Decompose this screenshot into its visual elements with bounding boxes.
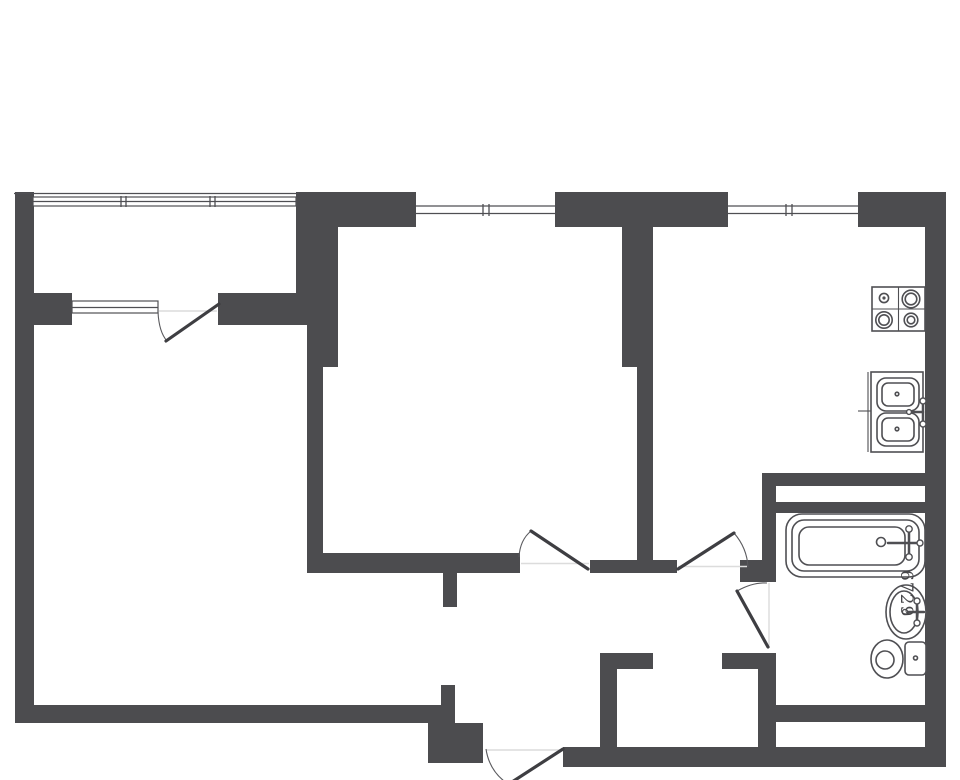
wall-bathroom-north [776, 502, 925, 513]
entrance-door-swing-arc [486, 749, 504, 780]
bedroom-door-swing-arc [519, 531, 531, 557]
entrance-door-leaf [512, 749, 563, 780]
toilet-tank [905, 642, 926, 675]
washbasin-faucet-knob [914, 620, 920, 626]
entrance-door [486, 749, 563, 780]
sink-faucet-knob [920, 398, 926, 404]
bathtub-outer [786, 514, 925, 577]
wall-bathroom-south [776, 705, 925, 722]
bedroom-window [416, 204, 555, 216]
balcony-inner-window [72, 301, 158, 313]
wall-bedroom-west-pilaster [307, 227, 338, 367]
kitchen-sink-icon [858, 372, 926, 452]
wall-living-south [15, 705, 455, 723]
walls [15, 192, 946, 767]
sink-faucet-knob [920, 421, 926, 427]
kitchen-window [728, 204, 858, 216]
stove-icon [872, 287, 925, 331]
sink-faucet-base [907, 410, 912, 415]
balcony-glazing-band [14, 194, 299, 208]
floor-plan: 6729 [0, 0, 960, 780]
wall-top-segment-a [320, 192, 416, 227]
stove-burner-center [882, 296, 885, 299]
wall-living-hall-stub-upper [443, 556, 457, 607]
toilet-icon [871, 640, 926, 678]
balcony-door-swing-arc [158, 312, 167, 341]
wall-bottom-outer [563, 747, 945, 767]
bathtub-icon [786, 514, 925, 577]
wall-balcony-sill-left [34, 293, 72, 325]
wall-balcony-sill-right [218, 293, 306, 325]
wall-left-outer [15, 192, 34, 723]
room-living-room [34, 325, 307, 705]
bathroom-door-leaf [737, 591, 768, 647]
thresholds [159, 311, 769, 750]
bathtub-faucet-spout [917, 540, 923, 546]
wall-bathroom-west-upper [762, 473, 776, 582]
wall-closet-north-left [600, 653, 653, 669]
room-balcony [34, 206, 296, 293]
bathroom-door [737, 583, 768, 647]
kitchen-door [678, 533, 748, 569]
bathroom-door-swing-arc [737, 583, 767, 591]
wall-closet-east [758, 653, 776, 747]
wall-living-hall-stub-lower [441, 685, 455, 707]
wall-entrance-block [428, 723, 483, 763]
balcony-door [158, 304, 219, 341]
bath-dimension-label: 6729 [896, 570, 916, 617]
kitchen-door-leaf [678, 533, 734, 569]
floor-plan-drawing: 6729 [0, 0, 960, 780]
balcony-door-leaf [166, 304, 219, 341]
wall-kitchen-south [762, 473, 945, 486]
room-closet [617, 669, 758, 747]
room-bedroom [323, 227, 622, 553]
wall-bedroom-east-pilaster [622, 227, 653, 367]
wall-hall-north [590, 560, 677, 573]
bathtub-faucet-knob [906, 554, 912, 560]
bathtub-faucet-knob [906, 526, 912, 532]
wall-bedroom-south [307, 553, 520, 573]
